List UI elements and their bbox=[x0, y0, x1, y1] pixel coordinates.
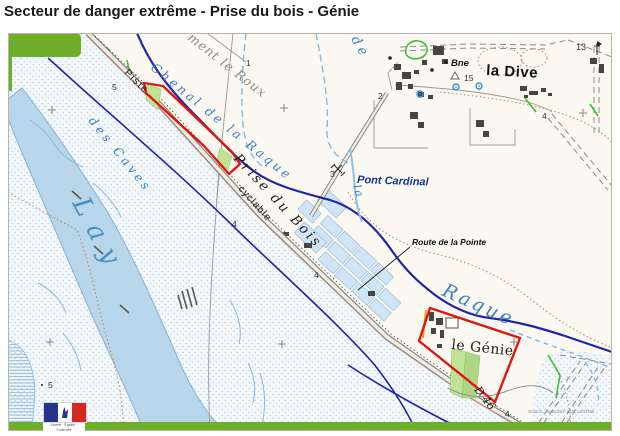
label-pt-15: 15 bbox=[464, 73, 474, 83]
label-n4-b: 4 bbox=[314, 270, 319, 280]
french-flag-icon bbox=[43, 402, 87, 423]
label-la-dive: la Dive bbox=[486, 62, 539, 82]
map: Chenal de la RaqueRaqueLaydes Cavesdelam… bbox=[8, 33, 612, 431]
label-n3: 3 bbox=[330, 169, 335, 179]
logo-motto: Liberté · Égalité · Fraternité bbox=[43, 423, 85, 431]
label-pont-cardinal: Pont Cardinal bbox=[357, 174, 430, 189]
label-route-de-la-pointe: Route de la Pointe bbox=[412, 237, 486, 247]
label-n5-road: 5 bbox=[112, 82, 117, 92]
label-n4-dive: 4 bbox=[542, 111, 547, 121]
genie-building-outline bbox=[446, 318, 458, 328]
label-n4-genie: 4 bbox=[505, 409, 510, 419]
label-n13: 13 bbox=[576, 42, 586, 52]
label-n4-a: 4 bbox=[232, 219, 237, 229]
label-attribution: Source : Scan25® IGN, L93TM5 bbox=[528, 408, 595, 414]
label-n5-marsh: 5 bbox=[48, 380, 53, 390]
label-n1: 1 bbox=[246, 58, 251, 68]
marianne-icon bbox=[62, 407, 68, 418]
french-government-logo: Liberté · Égalité · Fraternité RÉPUBLIQU… bbox=[43, 402, 89, 431]
map-image: Chenal de la RaqueRaqueLaydes Cavesdelam… bbox=[8, 33, 612, 431]
label-bne: Bne bbox=[451, 58, 470, 69]
page-title: Secteur de danger extrême - Prise du boi… bbox=[4, 3, 359, 20]
label-n2: 2 bbox=[378, 91, 383, 101]
